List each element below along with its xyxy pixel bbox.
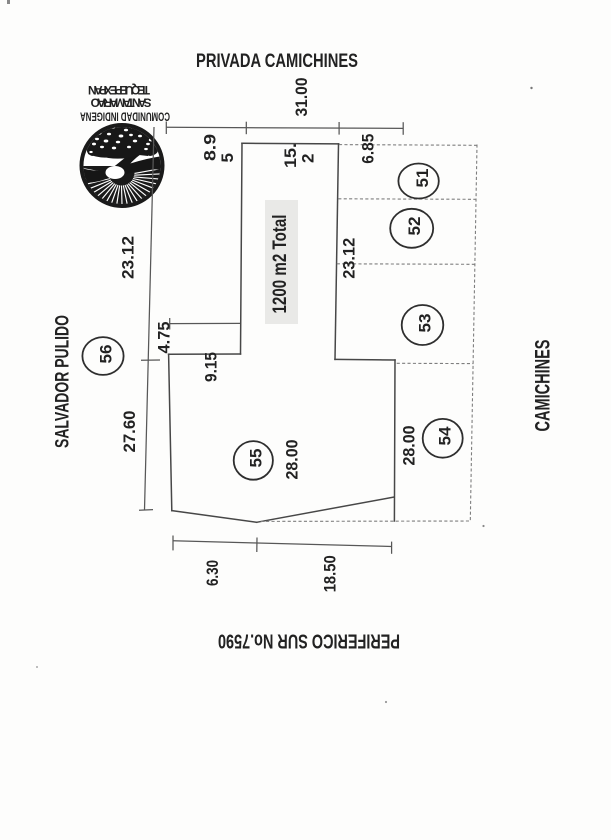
svg-text:54: 54 [436, 426, 455, 445]
svg-text:8.9: 8.9 [201, 134, 220, 161]
svg-text:55: 55 [247, 449, 266, 468]
svg-text:COMUNIDAD INDIGENA: COMUNIDAD INDIGENA [80, 110, 170, 124]
svg-text:51: 51 [413, 169, 432, 188]
svg-text:2: 2 [299, 154, 318, 163]
svg-text:PERIFERICO SUR No.7590: PERIFERICO SUR No.7590 [218, 630, 400, 652]
svg-text:TEQUEPEXPAN: TEQUEPEXPAN [88, 83, 150, 97]
svg-text:23.12: 23.12 [119, 236, 138, 279]
svg-text:CAMICHINES: CAMICHINES [532, 340, 555, 432]
svg-text:15.: 15. [281, 143, 300, 168]
svg-text:PRIVADA CAMICHINES: PRIVADA CAMICHINES [196, 51, 358, 72]
svg-text:SALVADOR PULIDO: SALVADOR PULIDO [53, 315, 74, 448]
svg-text:9.15: 9.15 [202, 352, 221, 382]
svg-text:18.50: 18.50 [320, 555, 339, 592]
svg-text:SANTAMARIA O: SANTAMARIA O [91, 96, 152, 110]
svg-text:28.00: 28.00 [400, 426, 419, 466]
svg-text:27.60: 27.60 [120, 411, 139, 453]
svg-text:6.30: 6.30 [203, 560, 222, 586]
svg-text:56: 56 [97, 345, 116, 364]
svg-text:5: 5 [218, 153, 237, 162]
svg-text:53: 53 [416, 314, 435, 333]
svg-text:23.12: 23.12 [340, 238, 359, 279]
svg-text:6.85: 6.85 [359, 134, 378, 164]
svg-text:1200 m2 Total: 1200 m2 Total [270, 215, 291, 314]
svg-text:28.00: 28.00 [283, 440, 302, 480]
svg-text:31.00: 31.00 [292, 78, 311, 117]
svg-text:4.75: 4.75 [155, 322, 174, 354]
svg-text:52: 52 [405, 217, 424, 236]
